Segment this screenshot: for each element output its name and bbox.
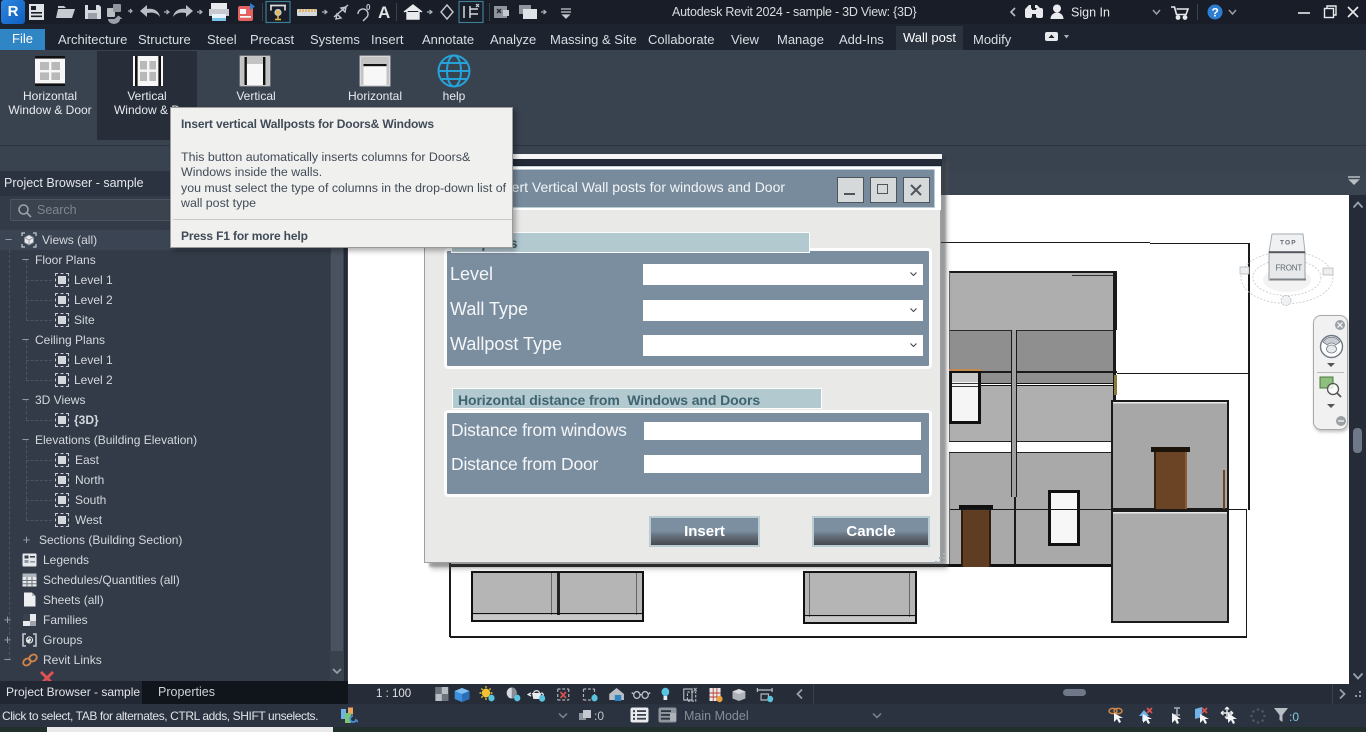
- svg-text:A: A: [378, 3, 390, 22]
- svg-text:Sign In: Sign In: [1071, 6, 1110, 20]
- svg-text:FRONT: FRONT: [1276, 264, 1303, 273]
- svg-text:?: ?: [1212, 6, 1219, 20]
- svg-text:0: 0: [366, 3, 371, 12]
- svg-text:TOP: TOP: [1280, 240, 1297, 247]
